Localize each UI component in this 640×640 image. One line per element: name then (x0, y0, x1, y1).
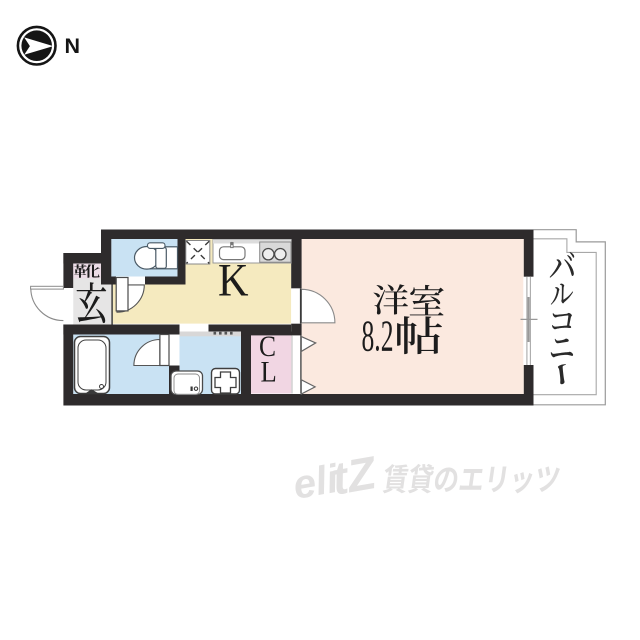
svg-text:L: L (261, 356, 277, 389)
svg-text:8.2: 8.2 (362, 312, 394, 361)
svg-text:N: N (65, 34, 81, 58)
svg-text:K: K (218, 255, 249, 307)
